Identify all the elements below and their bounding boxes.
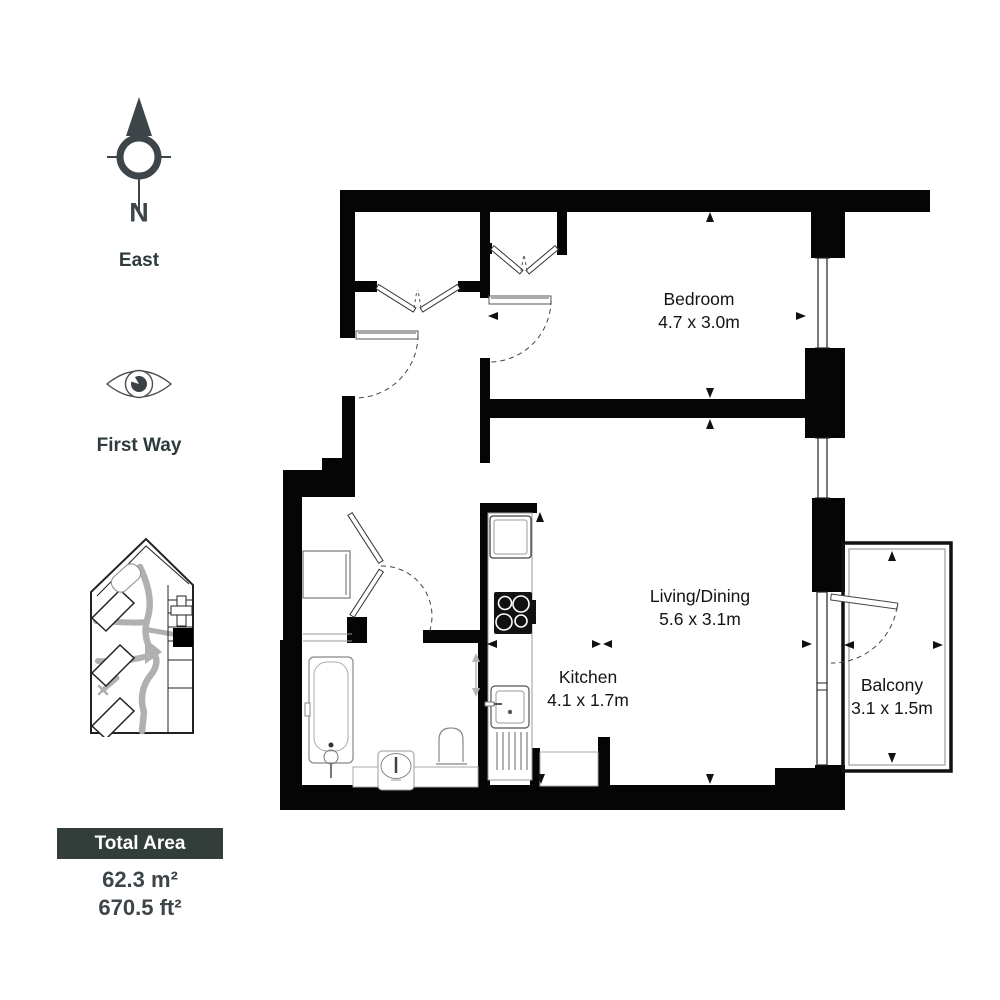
room-label-living-dining: Living/Dining 5.6 x 3.1m xyxy=(650,585,750,631)
room-dimensions: 3.1 x 1.5m xyxy=(851,697,933,720)
room-name: Bedroom xyxy=(658,288,740,311)
room-label-bedroom: Bedroom 4.7 x 3.0m xyxy=(658,288,740,334)
room-name: Living/Dining xyxy=(650,585,750,608)
room-label-balcony: Balcony 3.1 x 1.5m xyxy=(851,674,933,720)
room-dimensions: 4.7 x 3.0m xyxy=(658,311,740,334)
kitchen-fixtures xyxy=(485,513,598,786)
bathroom-fixtures xyxy=(303,551,478,790)
room-label-kitchen: Kitchen 4.1 x 1.7m xyxy=(547,666,629,712)
toilet xyxy=(439,728,463,762)
floor-plan xyxy=(0,0,1000,1000)
floorplan-page: { "compass": { "north": "N", "direction"… xyxy=(0,0,1000,1000)
doors xyxy=(303,246,898,663)
room-name: Balcony xyxy=(851,674,933,697)
room-dimensions: 5.6 x 3.1m xyxy=(650,608,750,631)
utility-unit xyxy=(303,551,350,598)
walls xyxy=(280,190,930,810)
room-name: Kitchen xyxy=(547,666,629,689)
room-dimensions: 4.1 x 1.7m xyxy=(547,689,629,712)
